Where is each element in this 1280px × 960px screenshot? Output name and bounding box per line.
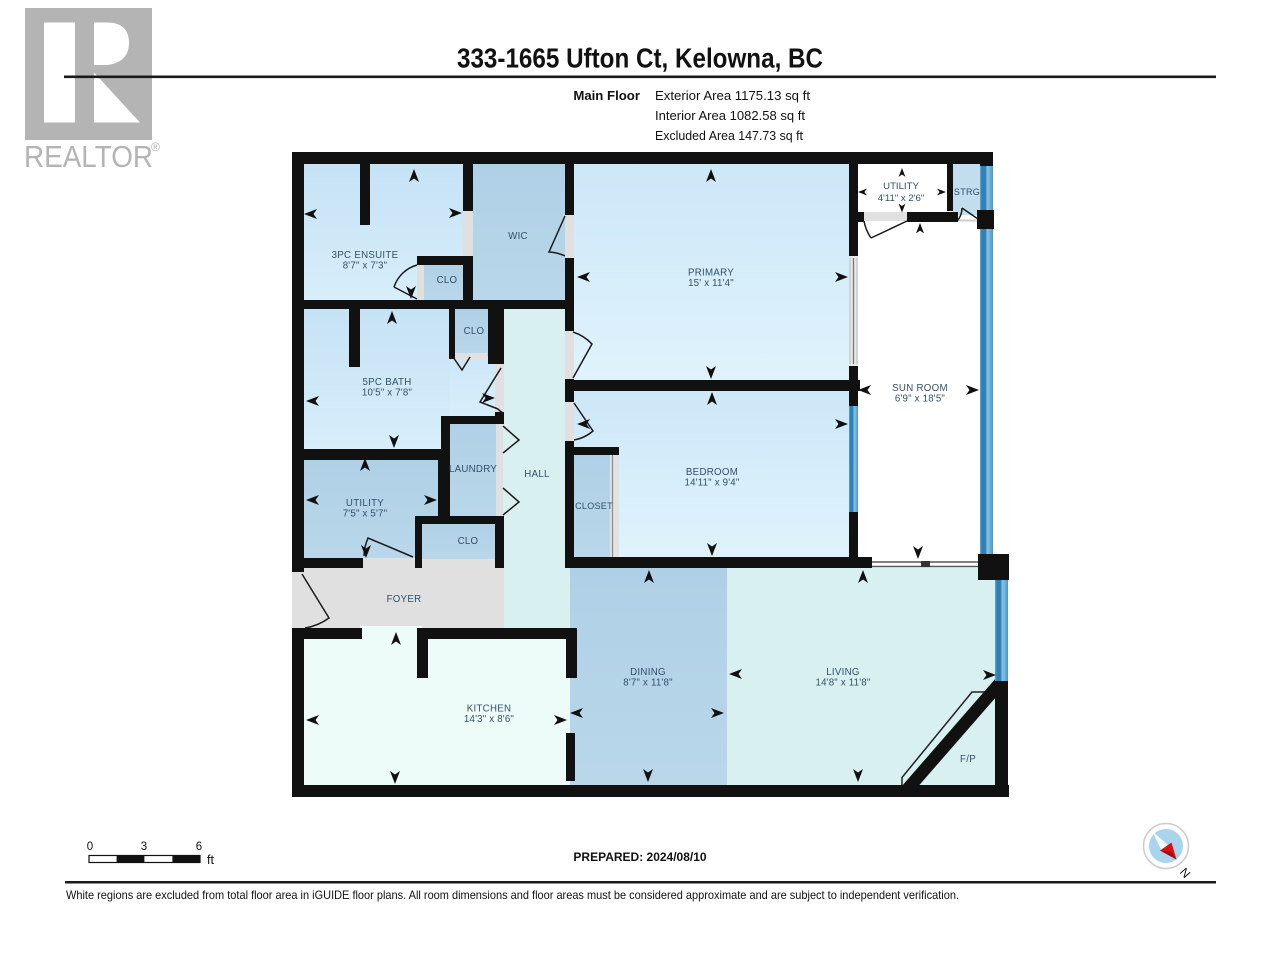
svg-text:Excluded Area 147.73 sq ft: Excluded Area 147.73 sq ft	[655, 128, 803, 143]
svg-text:CLO: CLO	[458, 536, 479, 547]
svg-text:14'8" x 11'8": 14'8" x 11'8"	[815, 678, 870, 689]
svg-text:WIC: WIC	[508, 231, 528, 242]
svg-text:14'11" x 9'4": 14'11" x 9'4"	[684, 478, 739, 489]
svg-text:LAUNDRY: LAUNDRY	[449, 464, 497, 475]
svg-text:14'3" x 8'6": 14'3" x 8'6"	[464, 714, 515, 725]
svg-text:CLO: CLO	[437, 275, 458, 286]
svg-text:SUN ROOM: SUN ROOM	[892, 383, 948, 394]
svg-text:4'11" x 2'6": 4'11" x 2'6"	[878, 193, 925, 204]
svg-text:STRG: STRG	[954, 187, 980, 197]
svg-text:PRIMARY: PRIMARY	[688, 268, 734, 279]
svg-text:REALTOR: REALTOR	[24, 139, 153, 174]
svg-text:DINING: DINING	[630, 667, 666, 678]
svg-text:8'7" x 7'3": 8'7" x 7'3"	[343, 261, 388, 272]
svg-text:FOYER: FOYER	[387, 594, 422, 605]
svg-text:KITCHEN: KITCHEN	[467, 704, 512, 715]
svg-text:8'7" x 11'8": 8'7" x 11'8"	[623, 678, 673, 689]
svg-text:F/P: F/P	[960, 754, 976, 765]
svg-text:UTILITY: UTILITY	[346, 498, 384, 509]
svg-text:6: 6	[196, 841, 202, 853]
svg-text:Interior Area 1082.58 sq ft: Interior Area 1082.58 sq ft	[655, 108, 805, 123]
svg-text:CLOSET: CLOSET	[575, 501, 613, 511]
svg-text:UTILITY: UTILITY	[883, 181, 919, 192]
svg-text:15' x 11'4": 15' x 11'4"	[688, 278, 734, 289]
svg-text:ft: ft	[207, 853, 214, 867]
svg-text:Main Floor: Main Floor	[573, 88, 640, 103]
svg-text:6'9" x 18'5": 6'9" x 18'5"	[895, 394, 946, 405]
svg-text:®: ®	[151, 140, 160, 154]
svg-text:10'5" x 7'8": 10'5" x 7'8"	[362, 388, 413, 399]
svg-text:HALL: HALL	[524, 469, 550, 480]
svg-text:7'5" x 5'7": 7'5" x 5'7"	[343, 509, 388, 520]
svg-text:CLO: CLO	[464, 326, 485, 337]
svg-text:LIVING: LIVING	[826, 667, 860, 678]
svg-text:5PC BATH: 5PC BATH	[362, 377, 411, 388]
svg-text:0: 0	[87, 841, 93, 853]
svg-text:Exterior Area 1175.13 sq ft: Exterior Area 1175.13 sq ft	[655, 88, 810, 103]
svg-text:3PC ENSUITE: 3PC ENSUITE	[332, 250, 399, 261]
svg-text:BEDROOM: BEDROOM	[686, 467, 738, 478]
svg-text:333-1665 Ufton Ct, Kelowna, BC: 333-1665 Ufton Ct, Kelowna, BC	[457, 43, 823, 74]
svg-text:3: 3	[141, 841, 147, 853]
svg-text:White regions are excluded fro: White regions are excluded from total fl…	[66, 888, 959, 902]
svg-text:PREPARED: 2024/08/10: PREPARED: 2024/08/10	[573, 850, 707, 864]
